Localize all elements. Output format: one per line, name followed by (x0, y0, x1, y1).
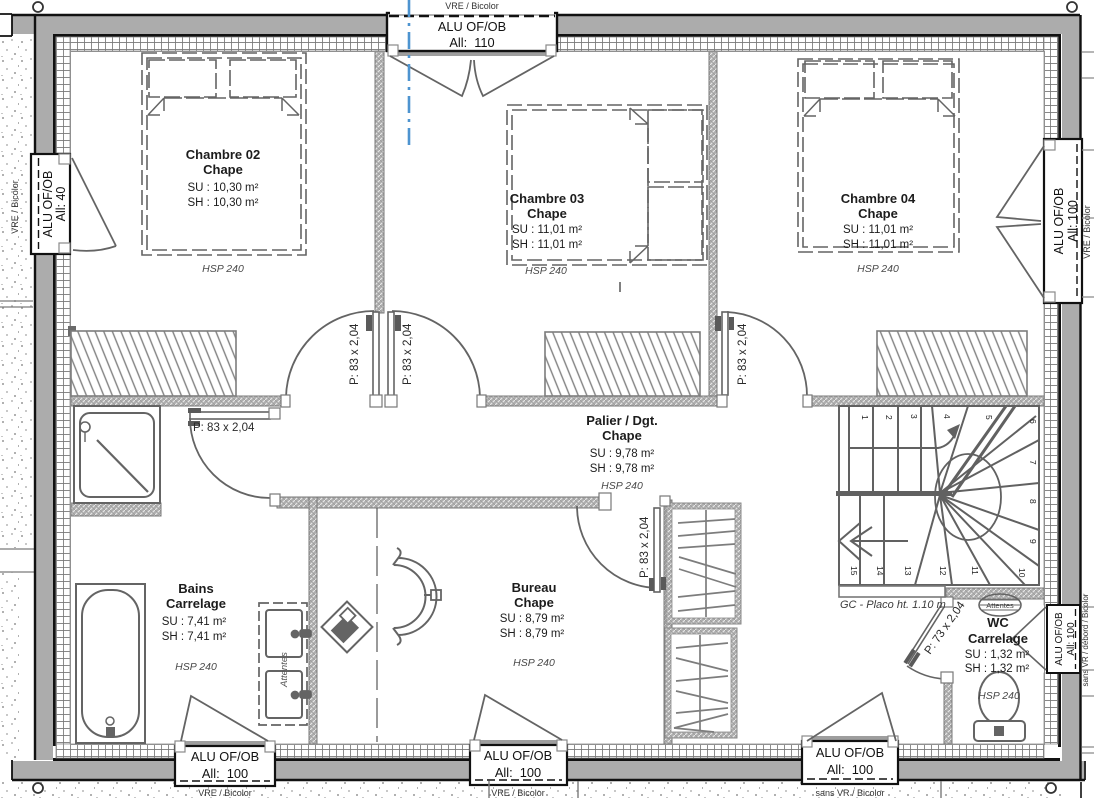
svg-text:13: 13 (903, 566, 913, 576)
svg-text:5: 5 (984, 415, 994, 420)
svg-text:Chambre 04: Chambre 04 (841, 191, 916, 206)
svg-text:HSP 240: HSP 240 (857, 263, 899, 275)
svg-text:SU : 7,41 m²: SU : 7,41 m² (162, 616, 227, 628)
svg-text:sans VR / Bicolor: sans VR / Bicolor (815, 788, 884, 798)
svg-text:14: 14 (875, 566, 885, 576)
svg-text:Chape: Chape (527, 206, 567, 221)
svg-text:SU : 1,32 m²: SU : 1,32 m² (965, 649, 1030, 661)
svg-text:P: 83 x 2,04: P: 83 x 2,04 (737, 323, 749, 385)
svg-text:GC - Placo ht. 1.10 m: GC - Placo ht. 1.10 m (840, 599, 946, 611)
svg-text:Carrelage: Carrelage (166, 596, 226, 611)
svg-text:11: 11 (970, 566, 980, 575)
svg-text:ALU OF/OB: ALU OF/OB (816, 745, 884, 760)
svg-text:ALU OF/OB: ALU OF/OB (191, 749, 259, 764)
svg-text:3: 3 (909, 414, 919, 419)
svg-text:SH : 1,32 m²: SH : 1,32 m² (965, 663, 1030, 675)
svg-text:SH : 7,41 m²: SH : 7,41 m² (162, 631, 227, 643)
svg-text:SU : 9,78 m²: SU : 9,78 m² (590, 448, 655, 460)
svg-text:SU : 11,01 m²: SU : 11,01 m² (512, 224, 582, 236)
svg-text:Chambre 02: Chambre 02 (186, 147, 260, 162)
svg-text:HSP 240: HSP 240 (513, 657, 555, 669)
svg-text:HSP 240: HSP 240 (601, 480, 643, 492)
svg-text:Palier / Dgt.: Palier / Dgt. (586, 413, 658, 428)
svg-text:HSP 240: HSP 240 (525, 265, 567, 277)
svg-text:Attentes: Attentes (986, 601, 1014, 610)
svg-text:SH : 11,01 m²: SH : 11,01 m² (843, 239, 913, 251)
svg-text:10: 10 (1017, 568, 1027, 578)
svg-text:WC: WC (987, 615, 1009, 630)
svg-text:Chape: Chape (602, 428, 642, 443)
svg-text:HSP 240: HSP 240 (175, 661, 217, 673)
svg-text:SH : 10,30 m²: SH : 10,30 m² (188, 197, 259, 209)
svg-text:ALU OF/OB: ALU OF/OB (1052, 188, 1066, 255)
svg-text:All: 100: All: 100 (1066, 200, 1080, 242)
svg-text:ALU OF/OB: ALU OF/OB (1054, 612, 1065, 666)
svg-text:SU : 11,01 m²: SU : 11,01 m² (843, 224, 913, 236)
svg-text:Bureau: Bureau (512, 580, 557, 595)
svg-text:HSP 240: HSP 240 (202, 263, 244, 275)
svg-text:ALU OF/OB: ALU OF/OB (438, 19, 506, 34)
svg-text:Carrelage: Carrelage (968, 631, 1028, 646)
svg-text:VRE / Bicolor: VRE / Bicolor (491, 788, 545, 798)
svg-text:12: 12 (938, 566, 948, 576)
svg-text:All: 100: All: 100 (202, 766, 248, 781)
svg-text:Attentes: Attentes (279, 652, 290, 688)
svg-text:HSP 240: HSP 240 (978, 690, 1020, 702)
svg-text:Bains: Bains (178, 581, 213, 596)
svg-text:All: 100: All: 100 (827, 762, 873, 777)
svg-text:Chambre 03: Chambre 03 (510, 191, 584, 206)
svg-text:7: 7 (1028, 460, 1038, 465)
svg-text:6: 6 (1028, 419, 1038, 424)
svg-text:All: 100: All: 100 (495, 765, 541, 780)
svg-text:ALU OF/OB: ALU OF/OB (484, 748, 552, 763)
svg-text:4: 4 (942, 414, 952, 419)
svg-text:SU : 8,79 m²: SU : 8,79 m² (500, 613, 565, 625)
svg-text:SH : 8,79 m²: SH : 8,79 m² (500, 628, 565, 640)
svg-text:Chape: Chape (858, 206, 898, 221)
svg-text:2: 2 (884, 415, 894, 420)
svg-text:All: 100: All: 100 (1066, 622, 1077, 656)
svg-text:1: 1 (860, 415, 870, 420)
svg-text:VRE / Bicolor: VRE / Bicolor (198, 788, 252, 798)
svg-text:P: 83 x 2,04: P: 83 x 2,04 (193, 422, 255, 434)
svg-text:ALU OF/OB: ALU OF/OB (41, 171, 55, 238)
svg-text:SH : 9,78 m²: SH : 9,78 m² (590, 463, 655, 475)
svg-text:VRE / Bicolor: VRE / Bicolor (10, 180, 20, 234)
svg-text:15: 15 (849, 566, 859, 576)
svg-text:P: 83 x 2,04: P: 83 x 2,04 (349, 323, 361, 385)
svg-text:9: 9 (1028, 539, 1038, 544)
svg-text:SU : 10,30 m²: SU : 10,30 m² (188, 182, 259, 194)
svg-text:VRE / Bicolor: VRE / Bicolor (1082, 205, 1092, 259)
svg-text:8: 8 (1028, 499, 1038, 504)
svg-text:SH : 11,01 m²: SH : 11,01 m² (512, 239, 582, 251)
svg-text:Chape: Chape (203, 162, 243, 177)
svg-text:P: 83 x 2,04: P: 83 x 2,04 (402, 323, 414, 385)
svg-text:All: 110: All: 110 (449, 35, 494, 50)
svg-text:P: 83 x 2,04: P: 83 x 2,04 (639, 516, 651, 578)
svg-text:All: 40: All: 40 (54, 187, 68, 222)
svg-text:VRE / Bicolor: VRE / Bicolor (445, 1, 499, 11)
svg-text:Chape: Chape (514, 595, 554, 610)
